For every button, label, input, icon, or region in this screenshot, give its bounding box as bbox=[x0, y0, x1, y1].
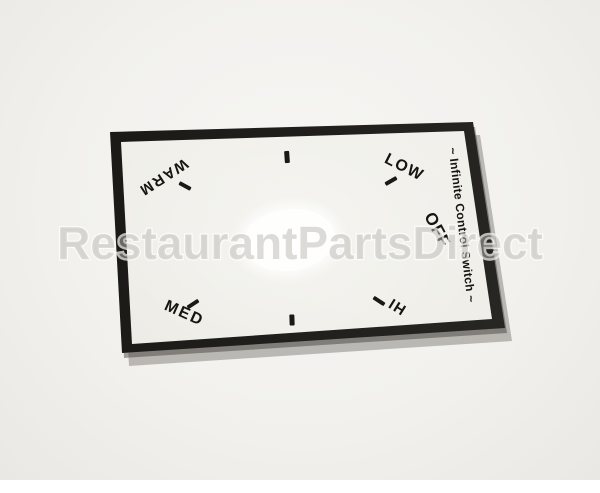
top-tick-mark bbox=[284, 151, 290, 163]
watermark-text: RestaurantPartsDirect bbox=[57, 216, 543, 270]
bottom-tick-mark bbox=[289, 314, 294, 325]
product-photo: WARM LOW OFF HI MED ~ Infinite Control S… bbox=[0, 0, 600, 480]
